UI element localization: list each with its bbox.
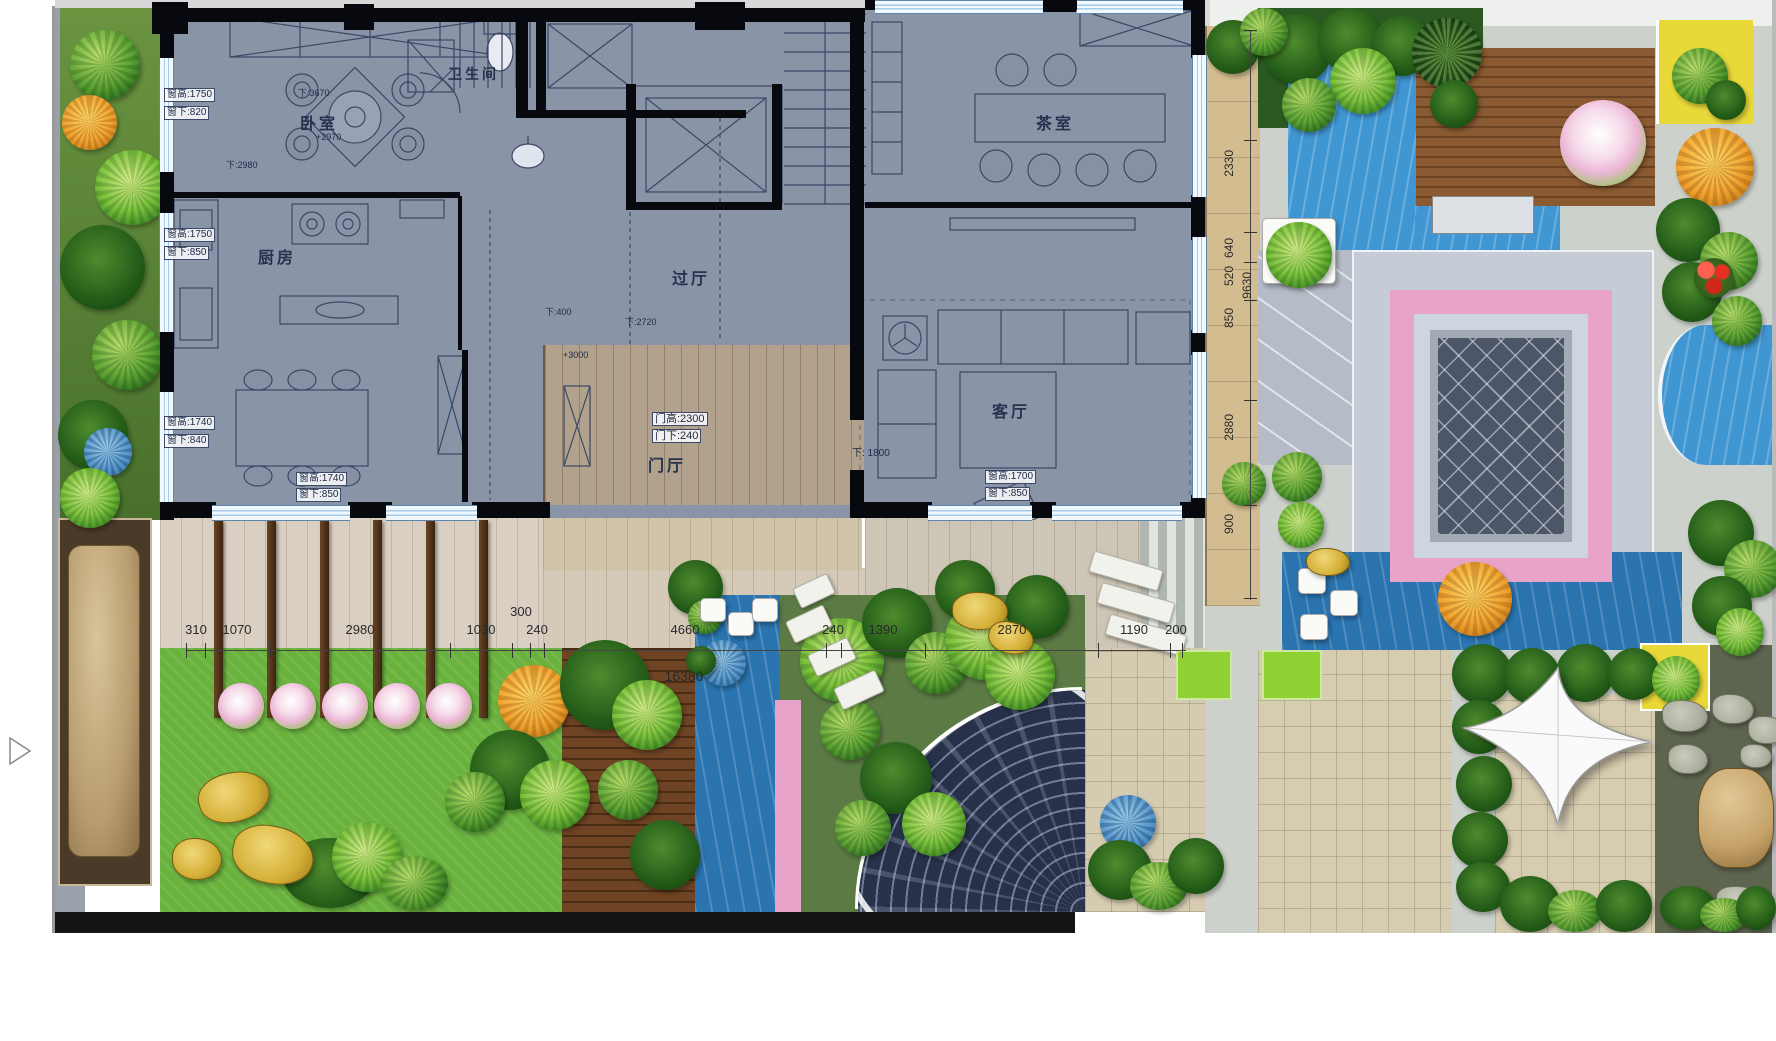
tree-icon <box>520 760 590 830</box>
tree-icon <box>445 772 505 832</box>
room-label-foyer: 门厅 <box>648 452 686 476</box>
tree-icon <box>70 30 140 100</box>
dim-tick <box>1182 643 1183 658</box>
bedroom-mark-3: 下:2980 <box>226 158 258 171</box>
foyer-door-sill: 门下:240 <box>652 429 701 443</box>
tree-icon <box>1716 608 1764 656</box>
bedroom-window-height: 窗高:1750 <box>164 88 215 102</box>
dim-tick <box>450 643 451 658</box>
tree-icon <box>60 225 145 310</box>
tree-icon <box>1548 890 1602 932</box>
dim-tick <box>1098 643 1099 658</box>
bedroom-mark-2: +2970 <box>316 132 341 142</box>
lawn-square-icon <box>1262 650 1322 700</box>
flagstone-icon <box>1748 716 1776 744</box>
lawn-square-icon <box>1176 650 1232 700</box>
room-label-living: 客厅 <box>992 398 1030 422</box>
triangle-marker <box>8 736 32 766</box>
bottom-margin <box>0 933 1776 1041</box>
dim-tick <box>544 643 545 658</box>
orange-tree-icon <box>1438 562 1512 636</box>
foyer-door-height: 门高:2300 <box>652 412 708 426</box>
flagstone-icon <box>1662 700 1708 732</box>
living-window-height: 窗高:1700 <box>985 470 1036 484</box>
dim-h-3: 1030 <box>467 622 496 637</box>
dim-tick <box>530 643 531 658</box>
red-flower-bush-icon <box>1694 258 1734 298</box>
dim-v-1: 640 <box>1222 238 1236 258</box>
dining-window-height: 窗高:1740 <box>164 416 215 430</box>
stepping-pad-icon <box>700 598 726 622</box>
living-window-sill: 窗下:850 <box>985 487 1030 501</box>
dim-chain-h-line <box>186 650 1186 651</box>
tree-icon <box>1430 80 1478 128</box>
window-glass <box>1192 237 1207 333</box>
dim-tick <box>1244 505 1257 506</box>
gold-rock-icon <box>1306 548 1350 576</box>
right-border-line <box>1772 0 1776 935</box>
window-glass <box>212 505 350 521</box>
wall-segment <box>462 350 468 502</box>
dim-tick <box>1244 232 1257 233</box>
stepping-pad-icon <box>752 598 778 622</box>
flowering-tree-icon <box>374 683 420 729</box>
tree-icon <box>1712 296 1762 346</box>
wall-segment <box>152 2 188 34</box>
dim-tick <box>1244 400 1257 401</box>
tree-icon <box>1222 462 1266 506</box>
kitchen-window-sill: 窗下:850 <box>164 246 209 260</box>
tree-icon <box>1652 656 1700 704</box>
orange-tree-icon <box>1676 128 1754 206</box>
dim-h-1: 1070 <box>223 622 252 637</box>
wall-segment <box>772 84 782 210</box>
wall-segment <box>516 8 528 116</box>
dim-v-4: 2880 <box>1222 414 1236 441</box>
pergola-beam-icon <box>267 520 276 718</box>
wall-segment <box>160 8 865 22</box>
flowering-tree-icon <box>426 683 472 729</box>
dim-h-4: 300 <box>510 604 532 619</box>
flagstone-icon <box>1712 694 1754 724</box>
hallway-mark-3: +3000 <box>563 350 588 360</box>
flowering-tree-icon <box>270 683 316 729</box>
pond-lower <box>695 595 780 912</box>
window-glass <box>386 505 477 521</box>
flagstone-icon <box>1668 744 1708 774</box>
orange-tree-icon <box>62 95 117 150</box>
wall-segment <box>1040 0 1076 12</box>
window-glass <box>875 0 1043 14</box>
wall-segment <box>160 502 216 518</box>
dim-h-0: 310 <box>185 622 207 637</box>
pergola-beam-icon <box>320 520 329 718</box>
pink-band <box>775 700 801 912</box>
dining-window-sill: 窗下:840 <box>164 434 209 448</box>
pergola-beam-icon <box>214 520 223 718</box>
orange-tree-icon <box>498 665 570 737</box>
tree-icon <box>1412 18 1482 88</box>
dim-h-total: 16380 <box>665 668 704 684</box>
window-glass <box>1052 505 1182 521</box>
dim-h-6: 4660 <box>671 622 700 637</box>
wall-segment <box>850 470 864 518</box>
dim-tick <box>186 643 187 658</box>
wall-segment <box>856 502 932 518</box>
dim-v-5: 900 <box>1222 514 1236 534</box>
tree-icon <box>598 760 658 820</box>
room-label-bedroom: 卧室 <box>300 110 338 134</box>
window-glass <box>928 505 1032 521</box>
dim-tick <box>826 643 827 658</box>
dim-v-3: 850 <box>1222 308 1236 328</box>
kitchen-window-height: 窗高:1750 <box>164 228 215 242</box>
flowering-tree-icon <box>218 683 264 729</box>
tree-icon <box>1736 886 1776 930</box>
tree-icon <box>1266 222 1332 288</box>
wall-segment <box>160 192 460 198</box>
landscape-plan-canvas: 卧室 卫生间 厨房 过厅 门厅 茶室 客厅 窗高:1750 窗下:820 下:3… <box>0 0 1776 1041</box>
wall-segment <box>472 502 550 518</box>
room-label-kitchen: 厨房 <box>258 244 296 268</box>
wall-segment <box>850 8 864 208</box>
dim-h-10: 1190 <box>1120 622 1148 637</box>
wall-segment <box>344 4 374 30</box>
dim-tick <box>1244 140 1257 141</box>
left-planter-stone <box>68 545 140 857</box>
window-glass <box>1192 55 1207 197</box>
dim-tick <box>1244 30 1257 31</box>
stepping-pad-icon <box>1300 614 1328 640</box>
gold-rock-icon <box>172 838 222 880</box>
tree-icon <box>835 800 891 856</box>
tree-icon <box>1330 48 1396 114</box>
dim-tick <box>270 643 271 658</box>
dim-tick <box>205 643 206 658</box>
garden-bench-pavilion <box>1432 196 1534 234</box>
dim-h-2: 2980 <box>346 622 375 637</box>
hallway-mark-2: 下:2720 <box>625 315 657 328</box>
dim-v-2: 520 <box>1222 266 1236 286</box>
boulder-icon <box>1698 768 1774 868</box>
tree-icon <box>612 680 682 750</box>
wall-segment <box>1191 495 1205 518</box>
wall-segment <box>626 202 782 210</box>
window-glass <box>1192 352 1207 498</box>
tree-icon <box>1168 838 1224 894</box>
stepping-pad-icon <box>1330 590 1358 616</box>
left-border-line <box>52 6 55 934</box>
tree-icon <box>1706 80 1746 120</box>
living-opening-mark: 下: 1800 <box>852 444 890 459</box>
wall-segment <box>160 326 174 396</box>
dining-window2-sill: 窗下:850 <box>296 488 341 502</box>
dim-tick <box>512 643 513 658</box>
dim-h-11: 200 <box>1165 622 1187 637</box>
wall-segment <box>1191 0 1205 58</box>
hallway-mark-1: 下:400 <box>545 305 572 318</box>
dining-window2-height: 窗高:1740 <box>296 472 347 486</box>
window-glass <box>1077 0 1183 14</box>
tree-icon <box>630 820 700 890</box>
wall-segment <box>458 196 462 350</box>
pool-right <box>1658 325 1776 465</box>
dim-tick <box>1244 598 1257 599</box>
dim-tick <box>841 643 842 658</box>
wall-segment <box>865 202 1205 208</box>
dim-h-5: 240 <box>526 622 548 637</box>
flowering-tree-icon <box>1560 100 1646 186</box>
dim-tick <box>1244 262 1257 263</box>
tree-icon <box>1282 78 1336 132</box>
dim-v-total: 9630 <box>1240 272 1254 299</box>
flagstone-icon <box>1740 744 1772 768</box>
room-label-tearoom: 茶室 <box>1036 110 1074 134</box>
wall-segment <box>850 208 864 420</box>
sail-canopy <box>1462 666 1654 828</box>
dim-h-8: 1390 <box>869 622 898 637</box>
tree-icon <box>382 856 448 910</box>
pergola-beam-icon <box>479 520 488 718</box>
pavilion-tile-floor <box>1438 338 1564 534</box>
left-margin <box>0 0 55 1041</box>
dim-h-7: 240 <box>822 622 844 637</box>
tree-icon <box>1596 880 1652 932</box>
dim-tick <box>1244 300 1257 301</box>
stepping-pad-icon <box>728 612 754 636</box>
tree-icon <box>92 320 162 390</box>
wall-segment <box>536 8 546 114</box>
dim-tick <box>925 643 926 658</box>
room-label-hallway: 过厅 <box>672 265 710 289</box>
tree-icon <box>1272 452 1322 502</box>
bedroom-mark-1: 下:3670 <box>298 86 330 99</box>
dim-chain-v-line <box>1250 30 1251 600</box>
dim-h-9: 2870 <box>998 622 1027 637</box>
dim-v-0: 2330 <box>1222 150 1236 177</box>
bedroom-window-sill: 窗下:820 <box>164 106 209 120</box>
wall-segment <box>695 2 745 30</box>
wall-segment <box>626 84 636 210</box>
plan-shadow-strip <box>55 912 1075 934</box>
tree-icon <box>1278 502 1324 548</box>
flowering-tree-icon <box>322 683 368 729</box>
room-label-bathroom: 卫生间 <box>448 64 499 84</box>
tree-icon <box>902 792 966 856</box>
dim-tick <box>1170 643 1171 658</box>
tree-icon <box>60 468 120 528</box>
tree-icon <box>1240 8 1288 56</box>
